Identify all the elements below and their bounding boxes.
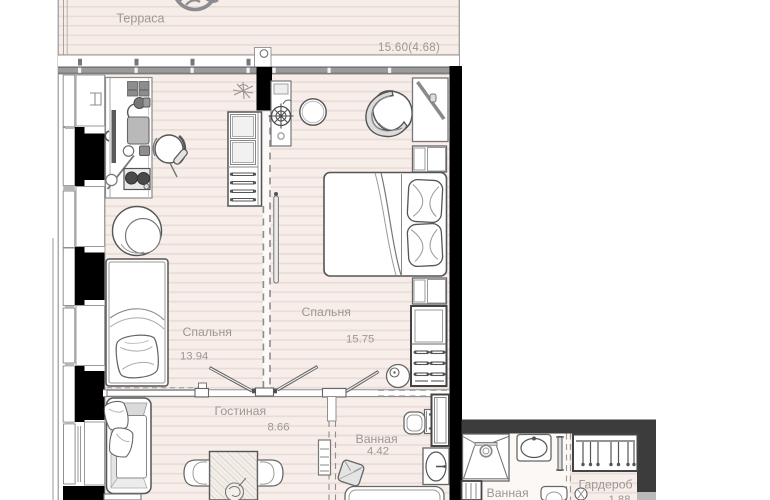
svg-text:Ванная: Ванная	[356, 432, 398, 446]
svg-text:15.60(4.68): 15.60(4.68)	[378, 42, 440, 54]
svg-text:Спальня: Спальня	[302, 305, 351, 319]
svg-text:Гардероб: Гардероб	[579, 478, 633, 492]
svg-text:4.42: 4.42	[367, 446, 389, 458]
svg-text:8.66: 8.66	[268, 422, 290, 434]
svg-text:Ванная: Ванная	[487, 486, 529, 500]
svg-text:1.88: 1.88	[609, 494, 631, 500]
svg-text:Терраса: Терраса	[117, 12, 165, 26]
svg-text:15.75: 15.75	[346, 334, 374, 346]
svg-text:Спальня: Спальня	[183, 325, 232, 339]
svg-text:13.94: 13.94	[180, 351, 208, 363]
svg-text:Гостиная: Гостиная	[215, 404, 267, 418]
